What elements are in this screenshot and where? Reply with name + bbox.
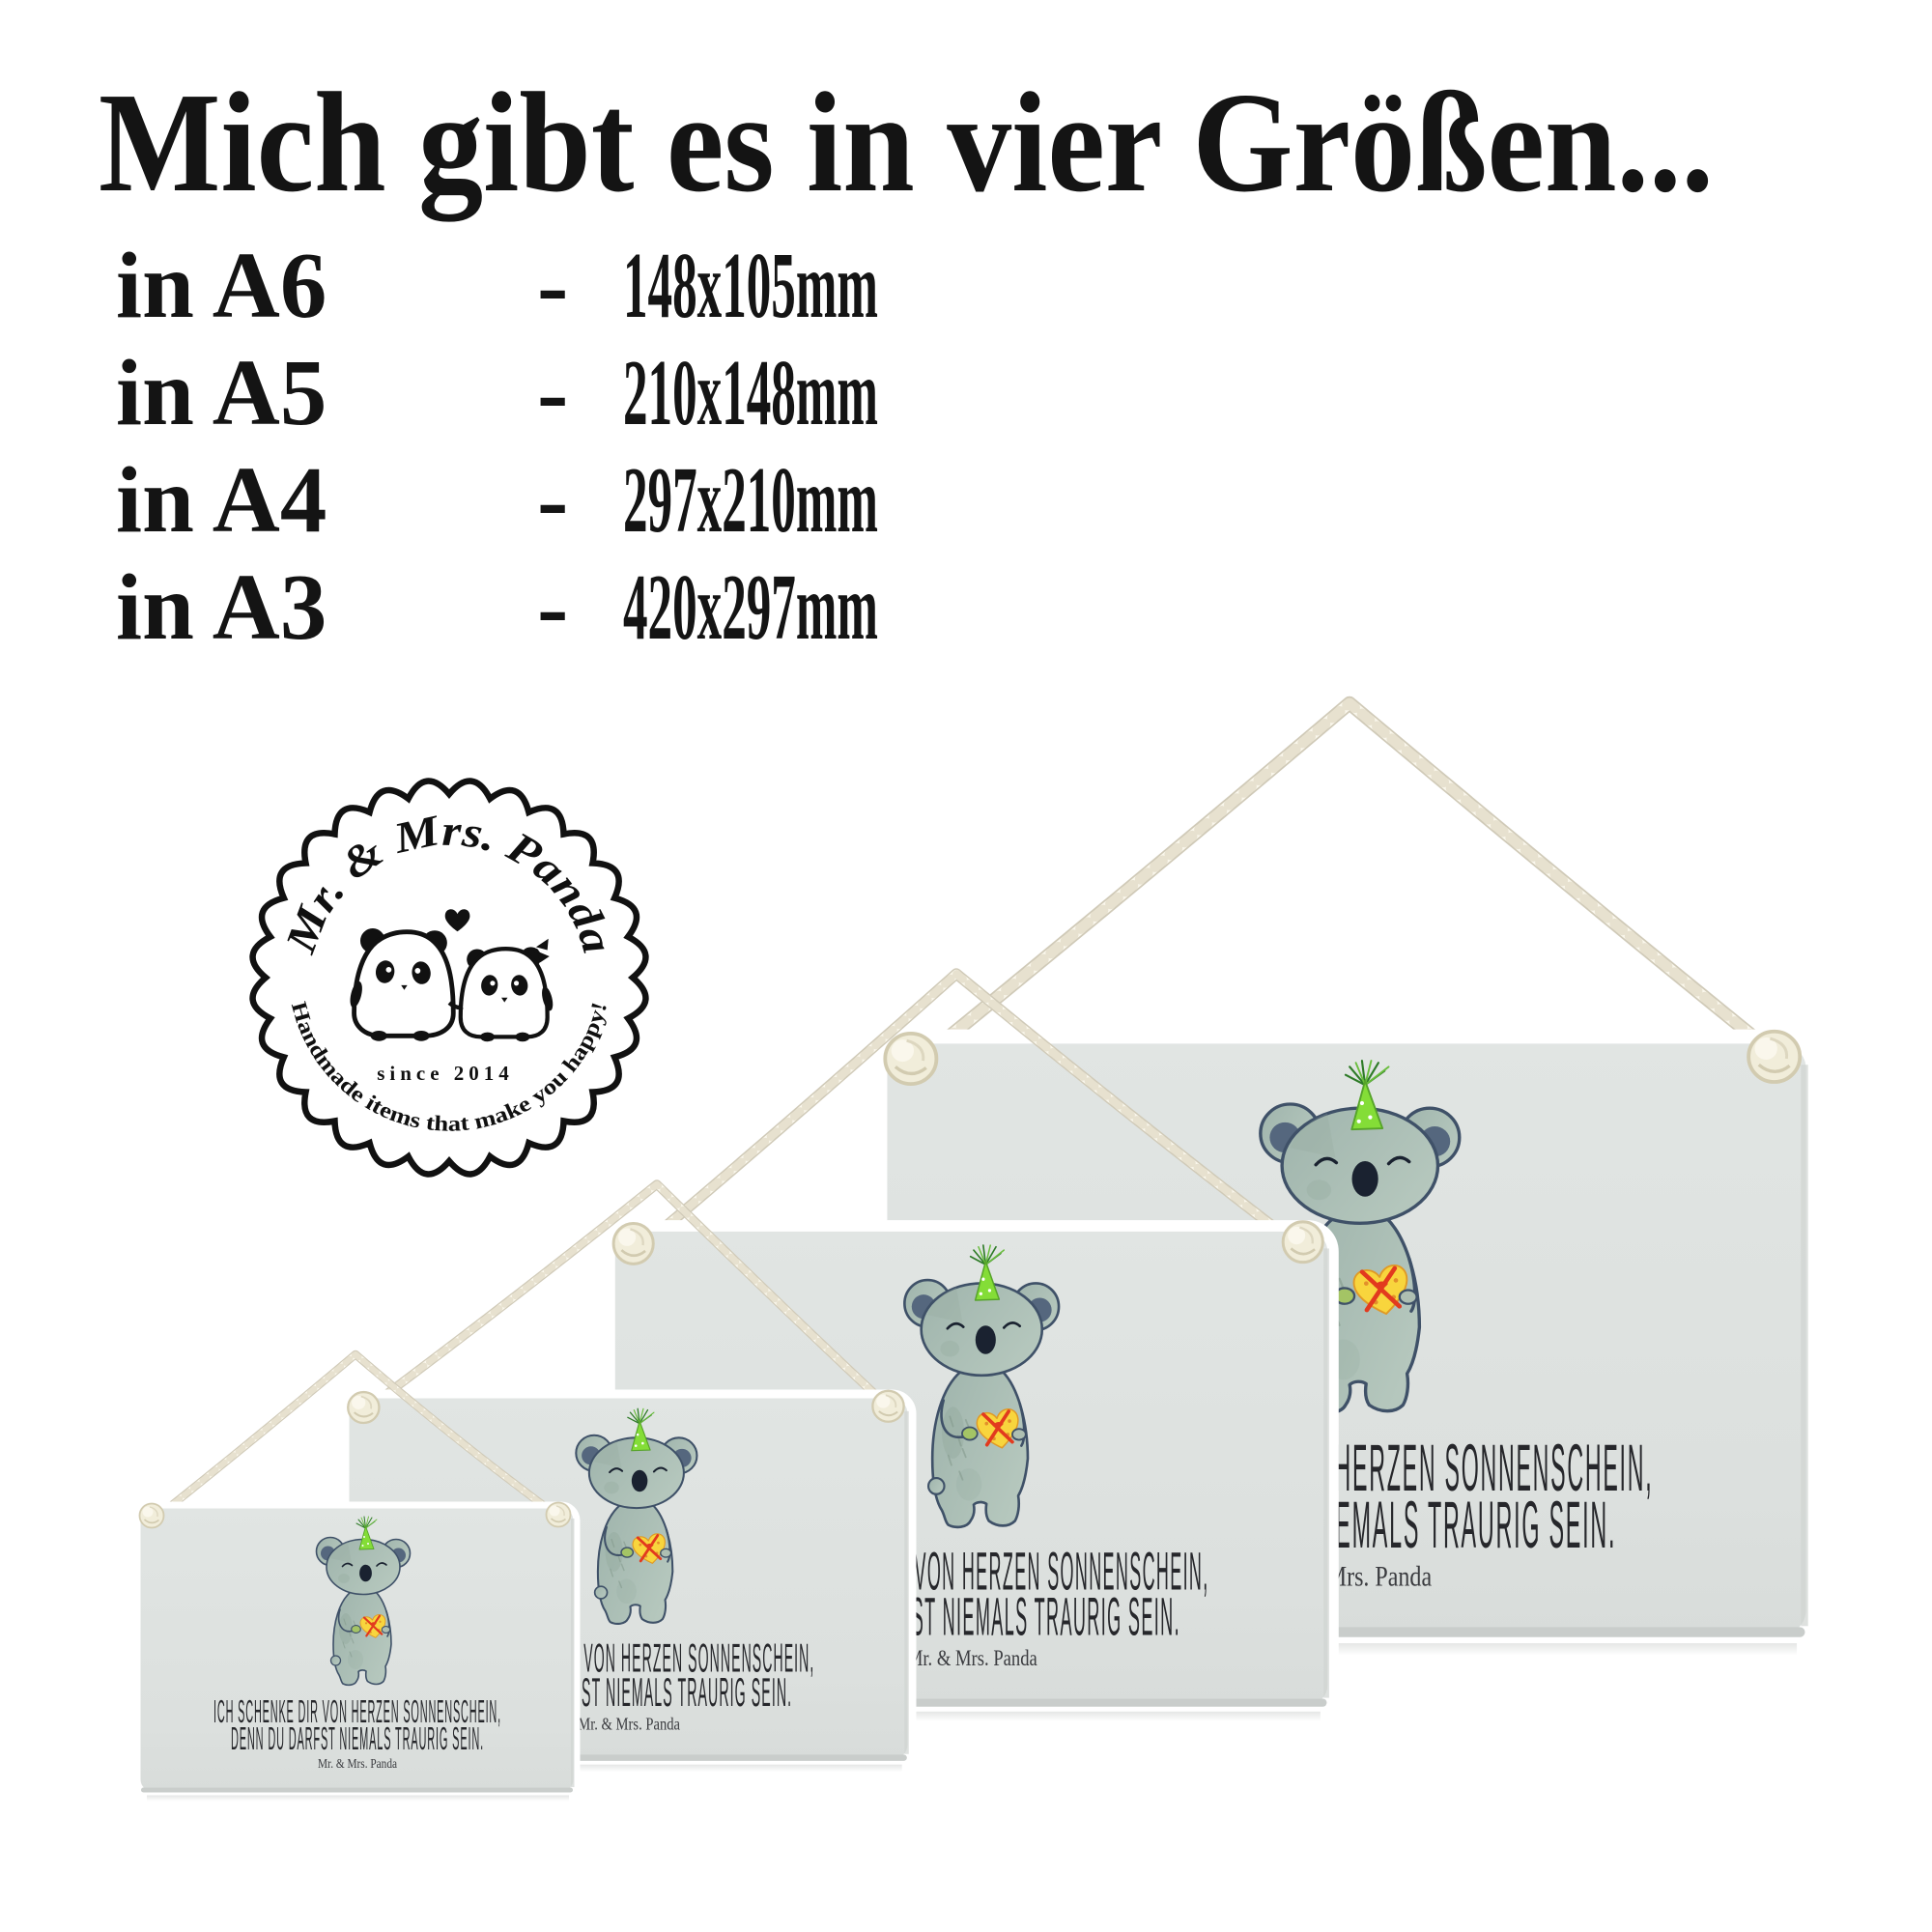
svg-text:Mich gibt es in vier Größen...: Mich gibt es in vier Größen...	[99, 64, 1714, 222]
svg-text:-: -	[537, 341, 568, 444]
svg-text:-: -	[537, 448, 568, 552]
svg-text:since 2014: since 2014	[377, 1062, 514, 1085]
svg-text:297x210mm: 297x210mm	[623, 448, 878, 552]
svg-text:420x297mm: 420x297mm	[623, 555, 878, 659]
svg-text:in A3: in A3	[116, 555, 327, 659]
svg-text:in A6: in A6	[116, 234, 327, 337]
svg-text:148x105mm: 148x105mm	[623, 234, 878, 337]
svg-text:in A4: in A4	[116, 448, 327, 552]
svg-text:in A5: in A5	[116, 341, 327, 444]
svg-text:210x148mm: 210x148mm	[623, 341, 878, 444]
svg-text:-: -	[537, 234, 568, 337]
svg-text:-: -	[537, 555, 568, 659]
